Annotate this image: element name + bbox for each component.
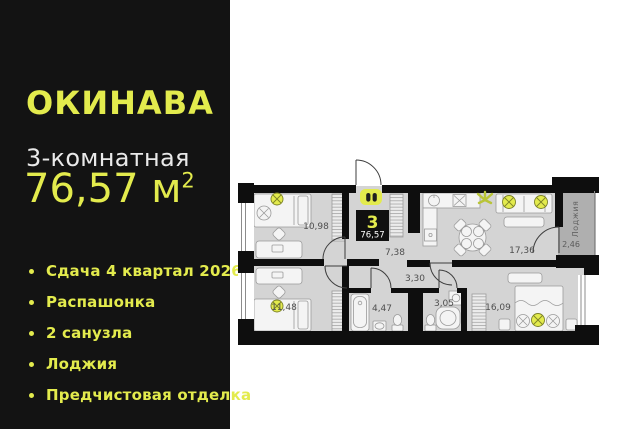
- bullet-icon: [29, 393, 34, 398]
- loggia-top-wall: [552, 177, 599, 193]
- feature-list: Сдача 4 квартал 2026 Распашонка 2 санузл…: [29, 262, 251, 417]
- socket-marker: [532, 314, 545, 327]
- sofa-marker: [535, 196, 548, 209]
- shower-sink: [436, 307, 460, 329]
- cushion: [517, 315, 530, 328]
- room-label-bedroom-bottom-right: 16,09: [485, 303, 511, 313]
- dining-table: [453, 218, 491, 256]
- info-panel: ОКИНАВА 3-комнатная 76,57 м2 Сдача 4 ква…: [0, 0, 230, 429]
- room-label-loggia-area: 2,46: [562, 240, 580, 249]
- room-label-bedroom-top-left: 10,98: [303, 222, 329, 232]
- cushion: [547, 315, 560, 328]
- room-label-loggia: Лоджия: [571, 201, 580, 238]
- sink: [373, 321, 386, 331]
- toilet: [425, 315, 436, 332]
- tv-console: [504, 217, 544, 227]
- dresser: [508, 273, 542, 283]
- room-label-hallway: 7,38: [385, 248, 405, 258]
- stove: [453, 195, 466, 207]
- brand-logo: ОКИНАВА: [26, 84, 214, 122]
- entrance-door: [356, 160, 381, 185]
- room-label-bathroom-main: 4,47: [372, 304, 392, 314]
- room-label-inner-hall: 3,30: [405, 274, 425, 284]
- feature-bathrooms: 2 санузла: [29, 324, 251, 342]
- floor-plan: 10,98 7,38 17,36 2,46 Лоджия 11,48 3,30 …: [232, 155, 640, 365]
- bullet-icon: [29, 269, 34, 274]
- feature-delivery: Сдача 4 квартал 2026: [29, 262, 251, 280]
- toilet: [392, 315, 403, 332]
- bullet-icon: [29, 300, 34, 305]
- duct-shaft: [408, 288, 423, 331]
- round-side-table: [257, 206, 271, 220]
- socket-marker: [271, 193, 283, 205]
- wardrobe: [472, 294, 486, 331]
- duct-shaft: [408, 193, 420, 233]
- entrance-icon: [360, 189, 382, 205]
- badge-total-area: 76,57: [360, 231, 384, 241]
- hall-wardrobe: [390, 194, 403, 237]
- bottom-wall: [238, 331, 599, 345]
- loggia-left-wall: [555, 193, 563, 227]
- window-right: [578, 275, 588, 325]
- bullet-icon: [29, 331, 34, 336]
- sofa-marker: [503, 196, 516, 209]
- feature-finish: Предчистовая отделка: [29, 386, 251, 404]
- bathtub: [351, 294, 369, 331]
- room-label-bedroom-bottom-left: 11,48: [271, 303, 297, 313]
- bullet-icon: [29, 362, 34, 367]
- nightstand: [499, 319, 510, 330]
- room-label-kitchen-living: 17,36: [509, 246, 535, 256]
- feature-loggia: Лоджия: [29, 355, 251, 373]
- plan-info-badge: 3 76,57: [356, 210, 389, 241]
- apartment-area: 76,57 м2: [24, 166, 195, 212]
- area-superscript: 2: [181, 169, 194, 193]
- window-left-bottom: [238, 273, 254, 319]
- window-left-top: [238, 203, 254, 251]
- feature-layout: Распашонка: [29, 293, 251, 311]
- room-label-bathroom-second: 3,05: [434, 299, 454, 309]
- area-value: 76,57 м: [24, 166, 181, 212]
